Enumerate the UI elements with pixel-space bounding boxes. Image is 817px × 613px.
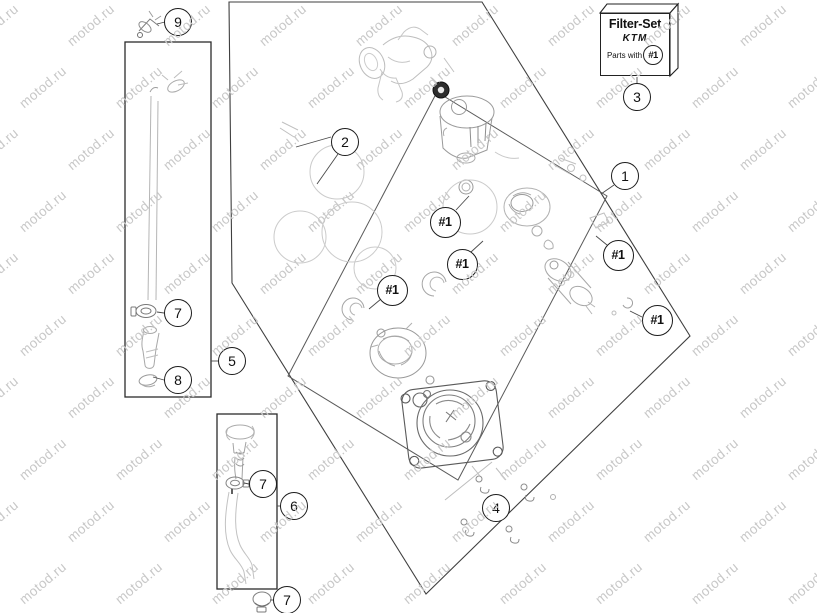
strainer-disc-sketch [370, 323, 426, 378]
part-flag: #1 [642, 305, 673, 336]
pump-motor-sketch [440, 96, 494, 163]
callout-2[interactable]: 2 [331, 128, 359, 156]
part-flag: #1 [447, 249, 478, 280]
filter-set-note-row: Parts with #1 [607, 45, 663, 65]
diagram-artwork [0, 0, 817, 613]
rubber-grommet-sketch [433, 82, 449, 98]
part-flag: #1 [603, 240, 634, 271]
part-flag: #1 [430, 207, 461, 238]
fuel-hose-sketch [225, 492, 254, 584]
filter-set-title: Filter-Set [609, 17, 661, 31]
callout-6[interactable]: 6 [280, 492, 308, 520]
callout-7[interactable]: 7 [273, 586, 301, 613]
washer-ring-sketch [459, 180, 473, 194]
callout-3[interactable]: 3 [623, 83, 651, 111]
hose-clamp-sketch-c [253, 592, 271, 612]
level-sender-sketch [495, 152, 609, 228]
valve-box [217, 414, 277, 589]
impeller-sketch [504, 188, 553, 249]
pump-flange-sketch [400, 376, 504, 469]
callout-1[interactable]: 1 [611, 162, 639, 190]
hose-connector-sketch [142, 327, 159, 369]
callout-7[interactable]: 7 [249, 470, 277, 498]
callout-5[interactable]: 5 [218, 347, 246, 375]
petcock-sketch [226, 425, 254, 479]
small-clip-sketch [612, 298, 633, 315]
callout-7[interactable]: 7 [164, 299, 192, 327]
callout-8[interactable]: 8 [164, 366, 192, 394]
parts-diagram-page: Filter-Set KTM Parts with #1 93217587647… [0, 0, 817, 613]
fuel-line-box [125, 42, 211, 397]
fuel-line-sketch [148, 71, 188, 300]
filter-set-box: Filter-Set KTM Parts with #1 [600, 13, 670, 76]
fuel-filter-sketch [541, 254, 596, 314]
grommet-8-sketch [138, 373, 158, 387]
filter-set-badge: #1 [643, 45, 663, 65]
part-flag: #1 [377, 275, 408, 306]
ktm-logo: KTM [623, 33, 648, 44]
callout-9[interactable]: 9 [164, 8, 192, 36]
filter-set-note-text: Parts with [607, 51, 642, 60]
hose-clamp-sketch-b [226, 477, 249, 494]
callout-4[interactable]: 4 [482, 494, 510, 522]
hose-clamp-sketch-a [131, 305, 156, 318]
